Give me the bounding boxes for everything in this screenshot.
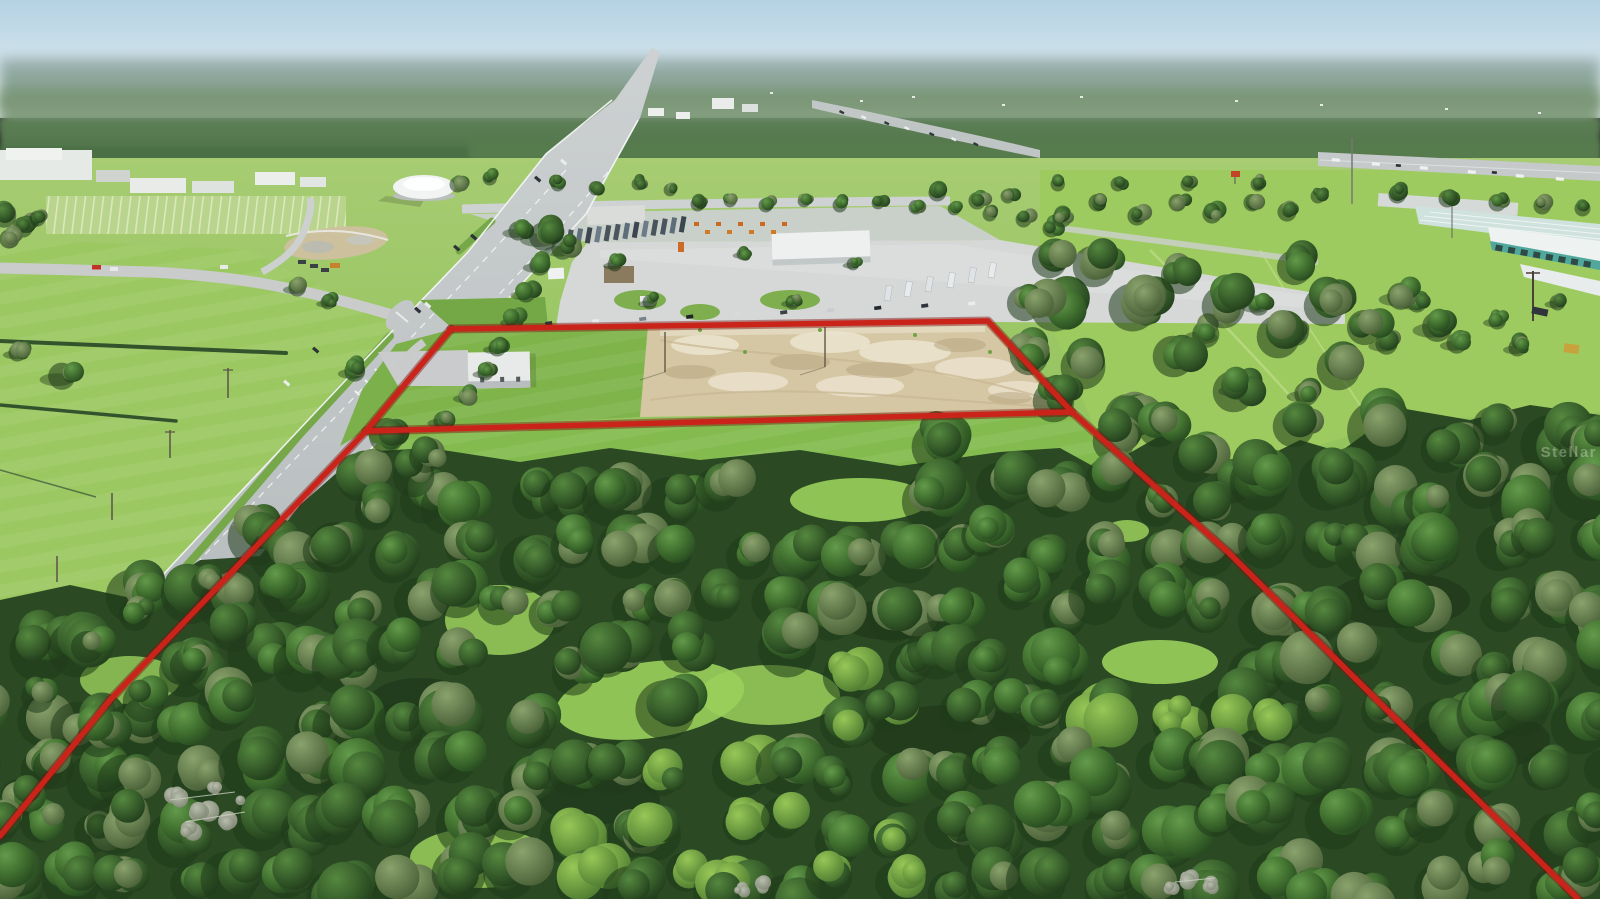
tree-canopy: [692, 195, 704, 207]
tree-canopy: [32, 681, 54, 703]
tree-canopy: [669, 185, 677, 193]
tree-canopy: [483, 366, 493, 376]
tree-canopy: [1211, 210, 1222, 221]
tree-canopy: [365, 498, 390, 523]
tree-canopy: [1174, 258, 1202, 286]
tree-canopy: [33, 211, 45, 223]
tree-canopy: [657, 525, 695, 563]
tree-canopy: [953, 201, 963, 211]
distant-house: [1235, 100, 1238, 102]
tree-canopy: [1280, 630, 1334, 684]
dark-truck: [298, 260, 306, 264]
billboard: [1231, 171, 1240, 177]
stellar-watermark: Stellar: [1541, 444, 1597, 461]
tree-canopy: [351, 361, 364, 374]
tree-canopy: [554, 648, 581, 675]
tree-canopy: [840, 199, 848, 207]
storage-unit-door: [1520, 249, 1528, 256]
tree-canopy: [183, 648, 206, 671]
tree-canopy: [580, 622, 632, 674]
tree-canopy: [443, 857, 479, 893]
tree-canopy: [1253, 454, 1290, 491]
tree-canopy: [1491, 587, 1527, 623]
tree-canopy: [1223, 367, 1249, 393]
photo-canvas: Stellar: [0, 0, 1600, 899]
tree-canopy: [649, 292, 659, 302]
tree-canopy: [432, 682, 476, 726]
tree-canopy: [630, 803, 673, 846]
tree-canopy: [823, 765, 846, 788]
tree-canopy: [1151, 406, 1178, 433]
tree-canopy: [375, 855, 419, 899]
tree-canopy: [976, 517, 998, 539]
tree-canopy: [1178, 434, 1217, 473]
tree-canopy: [321, 783, 367, 829]
tree-canopy: [118, 757, 151, 790]
tree-canopy: [504, 796, 533, 825]
grass-tuft: [743, 350, 747, 354]
distant-house: [1538, 112, 1541, 114]
tree-canopy: [1427, 856, 1461, 890]
distant-house: [1320, 104, 1323, 106]
tree-canopy: [1095, 194, 1106, 205]
tree-canopy: [1579, 201, 1589, 211]
tree-canopy: [1182, 176, 1194, 188]
tree-canopy: [865, 690, 895, 720]
tree-canopy: [272, 848, 314, 890]
sand-streak: [790, 331, 870, 353]
tree-canopy: [1267, 310, 1296, 339]
tree-canopy: [1027, 469, 1065, 507]
tree-canopy: [487, 168, 499, 180]
orange-equipment: [727, 230, 732, 234]
tree-canopy: [515, 221, 530, 236]
tree-canopy: [42, 803, 65, 826]
dark-truck: [321, 268, 329, 272]
tree-canopy: [726, 193, 737, 204]
tree-canopy: [1030, 693, 1061, 724]
tree-canopy: [896, 748, 929, 781]
tree-canopy: [1018, 211, 1030, 223]
dirt-patch-gray: [346, 235, 374, 245]
tree-canopy: [965, 804, 1014, 853]
tree-canopy: [771, 747, 802, 778]
tree-canopy: [1529, 749, 1569, 789]
tree-canopy: [1253, 178, 1264, 189]
tree-canopy: [1055, 212, 1065, 222]
tree-canopy: [832, 655, 869, 692]
tree-canopy: [718, 459, 756, 497]
tree-canopy: [672, 632, 702, 662]
tree-canopy: [1034, 853, 1071, 890]
tree-canopy: [1516, 338, 1529, 351]
tree-canopy: [1149, 581, 1185, 617]
tree-canopy: [1083, 693, 1138, 748]
tree-canopy: [1193, 482, 1231, 520]
distant-house: [770, 92, 773, 94]
tree-canopy: [291, 277, 307, 293]
tree-canopy: [833, 710, 864, 741]
distant-building: [742, 104, 758, 112]
tree-canopy: [15, 625, 51, 661]
tree-canopy: [1426, 485, 1449, 508]
storage-unit-door: [1495, 245, 1503, 252]
tree-canopy: [441, 412, 452, 423]
tree-canopy: [438, 481, 481, 524]
grass-tuft: [818, 328, 822, 332]
storage-unit-door: [1545, 254, 1553, 261]
tree-canopy: [973, 646, 998, 671]
tree-canopy: [1048, 240, 1076, 268]
tree-canopy: [15, 343, 30, 358]
tree-canopy: [813, 851, 844, 882]
tree-canopy: [550, 472, 587, 509]
tree-canopy: [1250, 513, 1282, 545]
nursery-rows: [46, 196, 346, 234]
orange-marker: [678, 242, 684, 252]
tree-canopy: [986, 206, 997, 217]
tree-canopy: [1305, 687, 1330, 712]
storage-unit-door: [1571, 258, 1579, 265]
tree-canopy: [531, 254, 550, 273]
tree-canopy: [592, 183, 605, 196]
tree-canopy: [212, 782, 222, 792]
tree-canopy: [329, 685, 375, 731]
tree-canopy: [222, 680, 254, 712]
storage-unit-door: [1558, 256, 1566, 263]
tree-canopy: [623, 588, 646, 611]
building-front: [468, 380, 530, 388]
tree-canopy: [1043, 656, 1072, 685]
orange-equipment: [749, 230, 754, 234]
tree-canopy: [902, 861, 926, 885]
tree-canopy: [380, 536, 407, 563]
sand-streak: [671, 335, 739, 355]
tree-canopy: [761, 197, 774, 210]
dirt-patch-gray: [302, 241, 334, 253]
tree-canopy: [355, 449, 393, 487]
dark-truck: [310, 264, 318, 268]
tree-canopy: [190, 802, 207, 819]
tree-canopy: [553, 175, 563, 185]
tree-canopy: [1255, 293, 1271, 309]
tree-canopy: [934, 183, 948, 197]
tree-canopy: [882, 827, 906, 851]
tree-canopy: [914, 200, 925, 211]
tree-canopy: [1389, 285, 1413, 309]
tree-canopy: [782, 612, 819, 649]
tree-canopy: [1198, 324, 1215, 341]
tree-canopy: [1482, 857, 1510, 885]
tree-canopy: [510, 700, 544, 734]
tree-canopy: [1003, 190, 1013, 200]
distant-building: [130, 178, 186, 193]
tree-canopy: [1218, 273, 1255, 310]
tree-canopy: [1300, 386, 1316, 402]
tree-canopy: [1415, 518, 1458, 561]
orange-equipment: [716, 222, 721, 226]
tree-canopy: [725, 804, 761, 840]
tree-canopy: [1417, 791, 1453, 827]
white-car: [220, 265, 228, 269]
distant-building: [300, 177, 326, 187]
tree-canopy: [1087, 238, 1118, 269]
tree-canopy: [1100, 811, 1130, 841]
distant-house: [1445, 108, 1448, 110]
tree-canopy: [503, 309, 520, 326]
tree-canopy: [111, 789, 145, 823]
tree-canopy: [370, 800, 418, 848]
distant-building: [712, 98, 734, 109]
tree-canopy: [1358, 309, 1383, 334]
distant-building: [192, 181, 234, 193]
tree-canopy: [454, 176, 469, 191]
grass-tuft: [913, 333, 917, 337]
tree-canopy: [1416, 294, 1431, 309]
building-door: [500, 377, 504, 382]
grass-tuft: [988, 350, 992, 354]
tree-canopy: [636, 179, 646, 189]
tree-canopy: [1206, 881, 1215, 890]
tree-canopy: [1070, 346, 1103, 379]
sand-streak: [935, 357, 1015, 379]
orange-equipment: [760, 222, 765, 226]
orange-equipment: [738, 222, 743, 226]
tree-canopy: [1481, 405, 1513, 437]
lot-hut: [548, 268, 565, 280]
tree-canopy: [848, 538, 875, 565]
lot-green-island: [680, 304, 720, 320]
glade: [1102, 640, 1218, 684]
distant-house: [912, 96, 915, 98]
tree-canopy: [1471, 741, 1513, 783]
tree-canopy: [459, 638, 488, 667]
tree-canopy: [972, 194, 985, 207]
tree-canopy: [1319, 450, 1354, 485]
tree-canopy: [1055, 176, 1064, 185]
tree-canopy: [1563, 847, 1599, 883]
highway-vehicle: [1396, 164, 1401, 167]
tree-canopy: [229, 849, 263, 883]
tree-canopy: [1465, 456, 1501, 492]
tree-canopy: [263, 563, 299, 599]
tree-canopy: [773, 792, 810, 829]
tree-canopy: [501, 588, 528, 615]
tree-canopy: [311, 526, 350, 565]
highway-vehicle: [1492, 171, 1497, 174]
tree-canopy: [913, 477, 944, 508]
tree-canopy: [1286, 251, 1315, 280]
tree-canopy: [656, 582, 689, 615]
tree-canopy: [982, 747, 1020, 785]
tree-canopy: [1024, 288, 1053, 317]
tree-canopy: [1328, 345, 1364, 381]
tree-canopy: [1014, 781, 1061, 828]
distant-building: [255, 172, 295, 185]
distant-house: [860, 100, 863, 102]
dome-highlight: [403, 177, 445, 191]
storage-unit-door: [1583, 261, 1591, 268]
tree-canopy: [872, 196, 882, 206]
tree-canopy: [428, 449, 446, 467]
tree-canopy: [64, 362, 84, 382]
tree-canopy: [1311, 599, 1347, 635]
tree-canopy: [210, 604, 248, 642]
storage-unit-door: [1533, 251, 1541, 258]
sand-streak: [708, 372, 788, 392]
storage-unit-door: [1508, 247, 1516, 254]
tree-canopy: [328, 299, 337, 308]
tree-canopy: [1115, 177, 1125, 187]
tree-canopy: [114, 859, 142, 887]
tree-canopy: [851, 258, 858, 265]
tree-canopy: [515, 282, 533, 300]
tree-canopy: [237, 736, 281, 780]
tree-canopy: [1283, 403, 1317, 437]
tree-canopy: [877, 587, 922, 632]
tree-canopy: [446, 731, 487, 772]
tree-canopy: [720, 741, 761, 782]
tree-canopy: [734, 887, 741, 894]
distant-house: [1080, 96, 1083, 98]
orange-equipment: [771, 230, 776, 234]
tree-canopy: [942, 872, 968, 898]
tree-canopy: [465, 522, 496, 553]
orange-equipment: [705, 230, 710, 234]
aerial-photo: Stellar: [0, 0, 1600, 899]
building-shade: [530, 353, 537, 387]
tree-canopy: [1256, 704, 1292, 740]
tree-canopy: [1492, 195, 1504, 207]
tree-canopy: [1428, 309, 1450, 331]
tree-canopy: [496, 340, 507, 351]
tree-canopy: [1303, 742, 1351, 790]
tree-canopy: [819, 582, 856, 619]
tree-canopy: [523, 762, 552, 791]
tree-canopy: [505, 837, 553, 885]
tree-canopy: [1249, 194, 1265, 210]
tree-canopy: [1454, 334, 1471, 351]
tree-canopy: [1553, 294, 1566, 307]
dirt-dark-patch: [664, 365, 716, 379]
tree-canopy: [1501, 672, 1551, 722]
distant-building: [676, 112, 690, 119]
white-car: [110, 267, 118, 271]
tree-canopy: [1490, 313, 1503, 326]
tree-canopy: [662, 767, 686, 791]
tree-canopy: [1003, 557, 1039, 593]
tree-canopy: [1098, 531, 1125, 558]
tree-canopy: [1165, 881, 1174, 890]
tree-canopy: [1519, 518, 1556, 555]
tree-canopy: [563, 234, 577, 248]
tree-canopy: [461, 389, 477, 405]
tree-canopy: [1426, 429, 1460, 463]
tree-canopy: [742, 534, 770, 562]
tree-canopy: [1199, 597, 1221, 619]
tree-canopy: [1283, 202, 1297, 216]
red-truck: [92, 265, 101, 270]
tree-canopy: [567, 528, 594, 555]
tree-canopy: [893, 524, 938, 569]
tree-canopy: [4, 232, 17, 245]
tree-canopy: [793, 294, 801, 302]
tree-canopy: [431, 562, 476, 607]
tree-canopy: [927, 422, 962, 457]
distant-building: [6, 148, 62, 160]
tree-canopy: [1536, 197, 1545, 206]
tree-canopy: [1236, 790, 1270, 824]
tree-canopy: [828, 814, 871, 857]
tree-canopy: [757, 875, 771, 889]
tree-canopy: [180, 826, 191, 837]
tree-canopy: [220, 816, 234, 830]
distant-building: [648, 108, 664, 116]
tree-canopy: [947, 687, 982, 722]
tree-canopy: [1387, 579, 1434, 626]
distant-house: [1002, 104, 1005, 106]
tree-canopy: [740, 250, 751, 261]
tree-canopy: [1541, 579, 1574, 612]
tree-canopy: [1173, 337, 1208, 372]
tree-canopy: [717, 584, 742, 609]
tree-canopy: [1085, 574, 1116, 605]
tree-canopy: [1134, 283, 1162, 311]
tree-canopy: [1337, 622, 1377, 662]
crane-truck: [330, 263, 340, 268]
tree-canopy: [601, 530, 637, 566]
tree-canopy: [1132, 208, 1143, 219]
tree-canopy: [1363, 404, 1406, 447]
distant-building: [96, 170, 130, 182]
tree-canopy: [612, 256, 623, 267]
tree-canopy: [236, 796, 244, 804]
tree-canopy: [1316, 188, 1329, 201]
tree-canopy: [551, 590, 582, 621]
tree-canopy: [665, 474, 696, 505]
orange-equipment: [694, 222, 699, 226]
tree-canopy: [594, 473, 626, 505]
dirt-dark-patch: [934, 338, 986, 352]
glade: [700, 665, 840, 725]
tree-canopy: [123, 602, 145, 624]
tree-canopy: [1442, 189, 1457, 204]
building-door: [516, 377, 520, 382]
tree-canopy: [1320, 289, 1343, 312]
tree-canopy: [650, 678, 699, 727]
tree-canopy: [1388, 755, 1430, 797]
tree-canopy: [1320, 789, 1364, 833]
tree-canopy: [801, 193, 813, 205]
orange-equipment: [782, 222, 787, 226]
tree-canopy: [1394, 184, 1404, 194]
tree-canopy: [386, 617, 421, 652]
tree-canopy: [588, 743, 625, 780]
tree-canopy: [83, 632, 101, 650]
tree-canopy: [938, 591, 972, 625]
tree-canopy: [1171, 197, 1185, 211]
